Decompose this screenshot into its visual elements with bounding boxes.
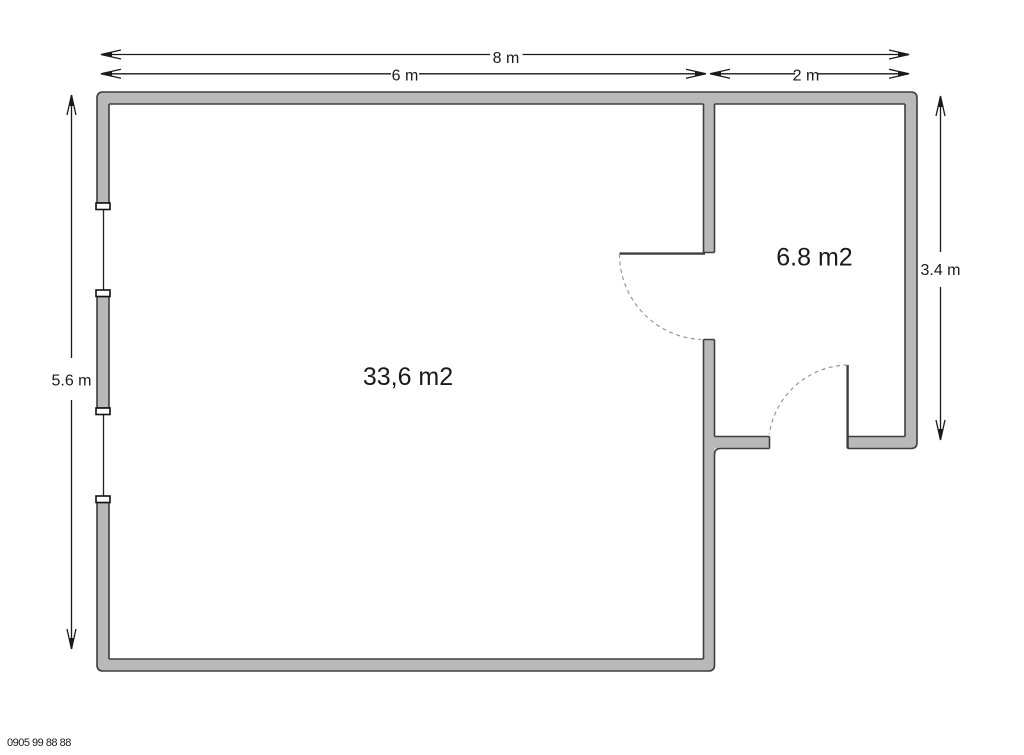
svg-text:33,6 m2: 33,6 m2: [363, 363, 453, 391]
svg-text:0905 99 88 88: 0905 99 88 88: [7, 737, 71, 749]
svg-text:5.6 m: 5.6 m: [51, 373, 91, 390]
svg-text:2 m: 2 m: [793, 67, 820, 84]
svg-text:8 m: 8 m: [493, 50, 520, 67]
svg-text:3.4 m: 3.4 m: [920, 262, 960, 279]
svg-text:6.8 m2: 6.8 m2: [776, 244, 852, 272]
svg-text:6 m: 6 m: [392, 67, 419, 84]
